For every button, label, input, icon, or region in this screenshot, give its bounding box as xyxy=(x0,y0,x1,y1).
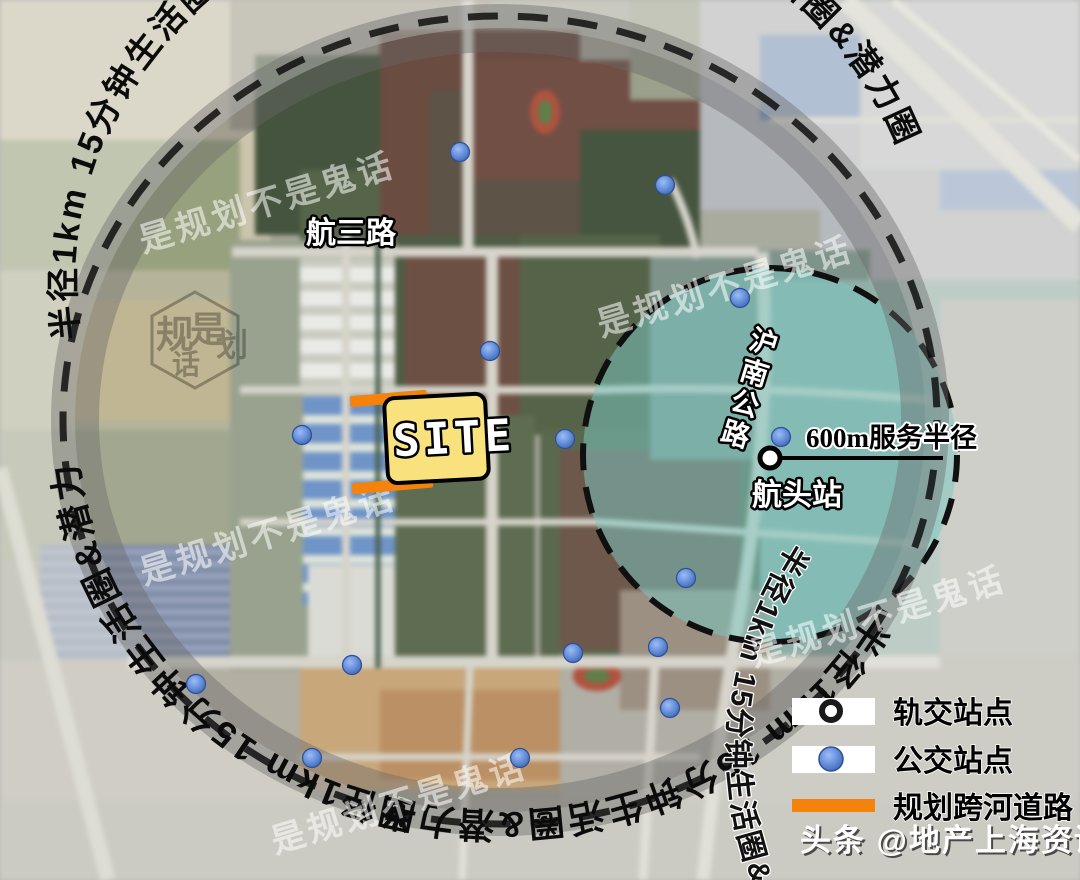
rail-station-icon xyxy=(822,702,840,720)
bus-stop-marker xyxy=(731,289,750,308)
stamp-char: 话 xyxy=(172,349,200,380)
map-infographic: 半径1km 15分钟生活圈&潜力圈 半径1km 15分钟生活圈&潜力圈 半径1k… xyxy=(0,0,1080,880)
planned-road-icon xyxy=(792,799,875,812)
legend-item-bus: 公交站点 xyxy=(792,744,1013,778)
service-radius-label: 600m服务半径 xyxy=(806,423,977,453)
legend-planned-road-label: 规划跨河道路 xyxy=(893,792,1074,825)
bus-stop-marker xyxy=(481,342,500,361)
bus-stop-marker xyxy=(556,430,575,449)
credit: 头条 @地产上海资讯 xyxy=(800,823,1080,858)
bus-stop-marker xyxy=(451,143,470,162)
map-canvas: 半径1km 15分钟生活圈&潜力圈 半径1km 15分钟生活圈&潜力圈 半径1k… xyxy=(0,0,1080,880)
bus-stop-marker xyxy=(564,644,583,663)
legend-bus-label: 公交站点 xyxy=(893,744,1013,778)
bus-stop-marker xyxy=(772,428,791,447)
rail-station-marker xyxy=(760,448,780,468)
station-name-label: 航头站 xyxy=(752,478,842,512)
bus-stop-marker xyxy=(187,675,206,694)
bus-stop-marker xyxy=(677,569,696,588)
site-label: SITE xyxy=(392,410,516,467)
bus-stop-marker xyxy=(343,656,362,675)
bus-stop-marker xyxy=(303,749,322,768)
bus-station-icon xyxy=(819,747,843,771)
stamp-char: 划 xyxy=(216,327,248,363)
bus-stop-marker xyxy=(293,426,312,445)
bus-stop-marker xyxy=(649,638,668,657)
legend-item-rail: 轨交站点 xyxy=(792,696,1013,730)
hangsan-road-label: 航三路 xyxy=(306,216,397,250)
bus-stop-marker xyxy=(656,176,675,195)
bus-stop-marker xyxy=(661,699,680,718)
credit-handle: @地产上海资讯 xyxy=(877,823,1080,858)
credit-prefix: 头条 xyxy=(800,823,877,858)
legend-rail-label: 轨交站点 xyxy=(893,696,1013,730)
bus-stop-marker xyxy=(511,749,530,768)
